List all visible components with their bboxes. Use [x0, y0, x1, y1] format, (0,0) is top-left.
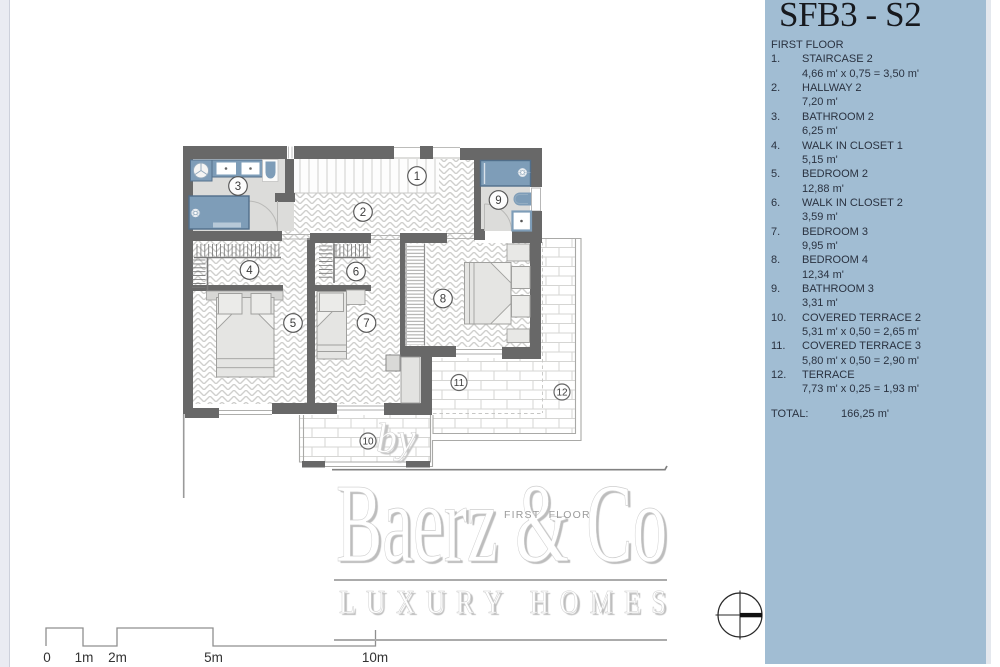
svg-text:0: 0	[43, 650, 51, 665]
svg-text:7: 7	[363, 318, 369, 330]
svg-text:8: 8	[440, 294, 446, 306]
svg-text:3: 3	[235, 181, 241, 193]
svg-text:9: 9	[495, 195, 501, 207]
svg-text:2m: 2m	[108, 650, 127, 665]
svg-text:10: 10	[362, 437, 374, 448]
svg-text:1m: 1m	[75, 650, 94, 665]
svg-text:6: 6	[353, 267, 359, 279]
svg-text:10m: 10m	[362, 650, 388, 665]
svg-text:5: 5	[290, 318, 296, 330]
svg-text:1: 1	[414, 171, 420, 183]
svg-text:11: 11	[454, 378, 465, 389]
svg-text:5m: 5m	[204, 650, 223, 665]
svg-text:2: 2	[360, 207, 366, 219]
svg-text:4: 4	[246, 265, 253, 277]
svg-text:12: 12	[556, 388, 568, 399]
